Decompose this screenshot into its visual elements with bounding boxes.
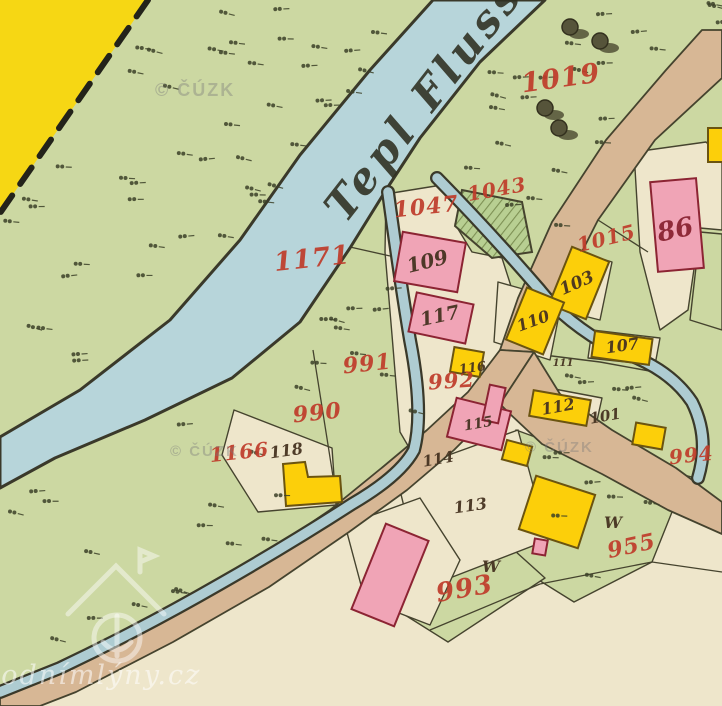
house-number-W: W	[604, 513, 624, 532]
svg-text:© ČÚZK: © ČÚZK	[525, 438, 594, 456]
site-watermark-text: vodnímlýny.cz	[0, 660, 201, 691]
map-viewport: 1019117110471043101599199099211669939949…	[0, 0, 722, 706]
parcel-number-991: 991	[342, 349, 393, 380]
parcel-number-990: 990	[292, 398, 343, 429]
parcel-number-994: 994	[668, 441, 715, 470]
building-masonry	[532, 538, 547, 555]
house-number-111: 111	[553, 358, 574, 369]
house-number-W: W	[482, 557, 502, 576]
tree-symbol	[537, 100, 553, 116]
svg-text:© ČÚZK: © ČÚZK	[170, 442, 239, 460]
tree-symbol	[592, 33, 608, 49]
building-wood	[632, 423, 665, 450]
tree-symbol	[562, 19, 578, 35]
cadastral-map[interactable]: 1019117110471043101599199099211669939949…	[0, 0, 722, 706]
svg-text:© ČÚZK: © ČÚZK	[155, 79, 235, 100]
tree-symbol	[551, 120, 567, 136]
building-wood	[708, 128, 722, 162]
